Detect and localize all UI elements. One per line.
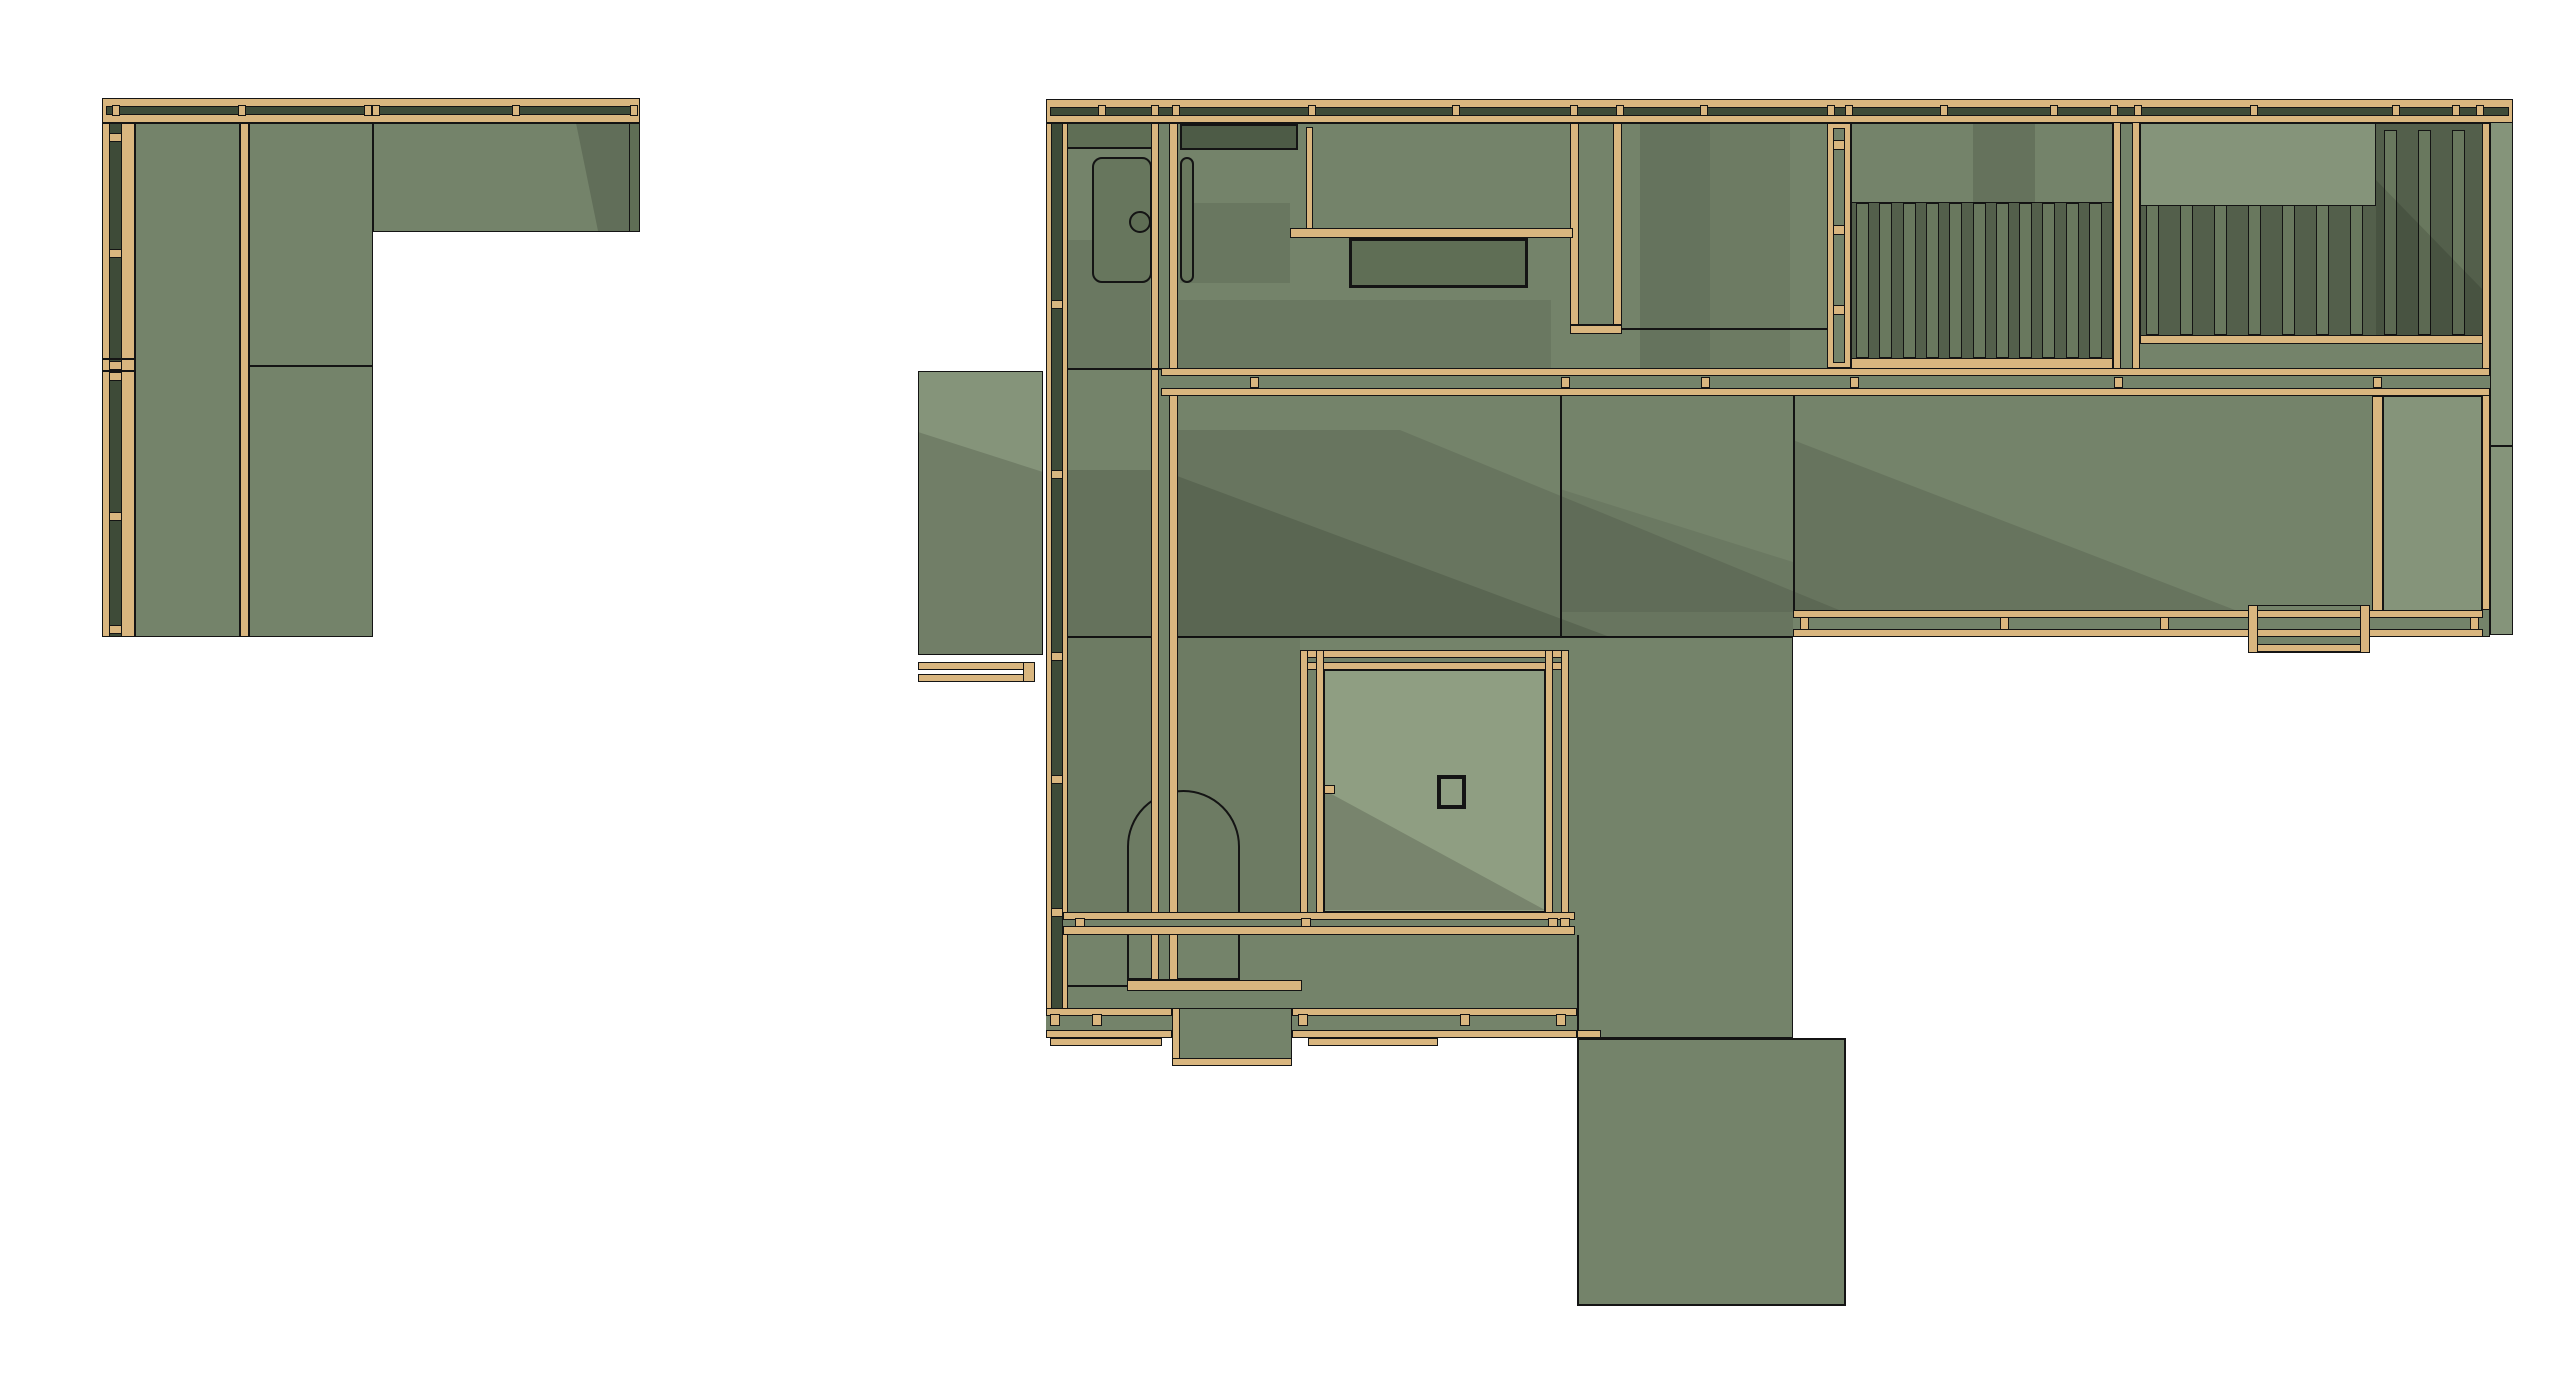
right-edge-seam bbox=[2490, 445, 2513, 447]
wall-w8-stud bbox=[1298, 1014, 1308, 1026]
wall-w3-block bbox=[1833, 140, 1845, 150]
wall-w6-stud bbox=[2160, 617, 2169, 630]
wall-w4-core bbox=[2120, 123, 2133, 385]
ledge-bottom bbox=[918, 674, 1035, 682]
bath-recess-left-line bbox=[1068, 147, 1153, 149]
left-wall-joint-a bbox=[102, 358, 135, 360]
shadow-room-tcr-b bbox=[1710, 123, 1790, 368]
wall-w7-stud bbox=[1548, 918, 1558, 927]
wall-w5-top bbox=[1161, 368, 2490, 376]
bath-recess-left bbox=[1068, 124, 1151, 148]
tab-right-bottom bbox=[2250, 644, 2368, 652]
joist-bay1-joists-slat bbox=[1926, 203, 1939, 358]
joist-bay2-cover bbox=[2140, 123, 2376, 206]
wall-w5-stud bbox=[2373, 377, 2382, 388]
right-top-band-stud bbox=[1098, 105, 1106, 116]
wall-w5-stud bbox=[1850, 377, 1859, 388]
room-r2-square bbox=[1437, 775, 1466, 809]
right-top-band-stud bbox=[1700, 105, 1708, 116]
joist-bay1-joists-slat bbox=[1879, 203, 1892, 358]
right-top-band-stud bbox=[1616, 105, 1624, 116]
left-top-band-stud bbox=[364, 105, 372, 116]
floor-seam-1577 bbox=[1577, 935, 1579, 1038]
right-top-band-core bbox=[1050, 107, 2509, 116]
wall-2372 bbox=[2372, 396, 2383, 612]
wall-w8l-core bbox=[1046, 1016, 1172, 1030]
right-top-band-stud bbox=[2452, 105, 2460, 116]
left-panel-a bbox=[135, 123, 240, 637]
wall-w2-cap bbox=[1570, 325, 1622, 334]
wall-w6-top bbox=[1793, 610, 2483, 618]
wall-w6-bottom bbox=[1793, 629, 2483, 637]
left-top-band-stud bbox=[112, 105, 120, 116]
door-leaf bbox=[1180, 157, 1194, 283]
joist-bay1-joists-slat bbox=[1973, 203, 1986, 358]
room-r1-bottom-wall bbox=[1290, 228, 1573, 238]
wall-w2-left-face bbox=[1570, 123, 1579, 325]
wall-w8r-top bbox=[1292, 1008, 1577, 1016]
right-top-band-stud bbox=[1940, 105, 1948, 116]
right-top-band-stud bbox=[1452, 105, 1460, 116]
joist-bay1-joists-slat bbox=[2019, 203, 2032, 358]
right-top-band-stud bbox=[1308, 105, 1316, 116]
bottom-column bbox=[1577, 1038, 1846, 1306]
right-top-band-stud bbox=[2250, 105, 2258, 116]
wall-w8-stud bbox=[1556, 1014, 1566, 1026]
joist-bay1-deck-shadow bbox=[1973, 124, 2035, 203]
left-panel-b-seam bbox=[249, 365, 373, 367]
right-top-band-stud bbox=[1845, 105, 1853, 116]
left-panel-b bbox=[249, 123, 373, 637]
right-left-wall-stud bbox=[1051, 300, 1063, 309]
tab-right-stud-left bbox=[2248, 605, 2258, 653]
wall-w2-right-face bbox=[1613, 123, 1622, 325]
floor-seam-1560 bbox=[1560, 396, 1562, 637]
room-r1-inset bbox=[1349, 238, 1528, 288]
shadow-room-tcr-a bbox=[1640, 123, 1710, 368]
wall-w5-stud bbox=[1701, 377, 1710, 388]
tab-bottom-mid-bottom bbox=[1172, 1058, 1292, 1066]
wall-w6-stud bbox=[2470, 617, 2479, 630]
arch-sill bbox=[1127, 980, 1302, 991]
ledge-top bbox=[918, 662, 1035, 670]
right-wall-inner-face bbox=[2482, 123, 2490, 610]
wall-w6-stud bbox=[1800, 617, 1809, 630]
hall-floor-line bbox=[1066, 985, 1127, 987]
wall-w6-core bbox=[1793, 618, 2483, 629]
room-r2-right-wall-a bbox=[1545, 650, 1553, 935]
wall-w7-top bbox=[1063, 912, 1575, 920]
right-left-wall-stud bbox=[1051, 908, 1063, 917]
left-top-band-stud bbox=[372, 105, 380, 116]
left-arm-endcap bbox=[629, 123, 640, 232]
wall-w1-core bbox=[1158, 123, 1170, 980]
room-r1-left-wall bbox=[1306, 127, 1313, 233]
left-wall-joint-b bbox=[102, 370, 135, 372]
right-edge-strip bbox=[2490, 99, 2513, 635]
wall-w5-stud bbox=[1250, 377, 1259, 388]
wall-w8l-sill bbox=[1050, 1038, 1162, 1046]
left-panel-seam-strip bbox=[240, 123, 249, 637]
wall-w3-block bbox=[1833, 305, 1845, 315]
wall-w7-stud bbox=[1075, 918, 1085, 927]
joist-bay1-joists-slat bbox=[2066, 203, 2079, 358]
wall-w5-bottom bbox=[1161, 388, 2490, 396]
room-r2-left-wall-b bbox=[1316, 650, 1324, 935]
wall-w5-stud bbox=[2114, 377, 2123, 388]
room-r2-left-wall-a bbox=[1300, 650, 1308, 935]
right-top-band-stud bbox=[2110, 105, 2118, 116]
right-left-wall-stud bbox=[1051, 652, 1063, 661]
right-left-wall-core bbox=[1051, 123, 1063, 1038]
drain bbox=[1129, 211, 1151, 233]
arch-opening bbox=[1127, 790, 1240, 980]
joist-bay1-joists-slat bbox=[1903, 203, 1916, 358]
wall-w8r-sill bbox=[1308, 1038, 1438, 1046]
room-r2-door-tab bbox=[1324, 785, 1335, 794]
wall-w5-stud bbox=[1561, 377, 1570, 388]
joist-bay1-joists-slat bbox=[2089, 203, 2102, 358]
left-top-band-stud bbox=[238, 105, 246, 116]
joist-bay1-joists-slat bbox=[1949, 203, 1962, 358]
left-wall-stud bbox=[109, 133, 122, 142]
bath-recess-right bbox=[1180, 124, 1298, 150]
right-top-band-stud bbox=[1172, 105, 1180, 116]
right-top-band-stud bbox=[1151, 105, 1159, 116]
tab-right-stud-right bbox=[2360, 605, 2370, 653]
wall-w8-stud bbox=[1460, 1014, 1470, 1026]
right-top-band-stud bbox=[2134, 105, 2142, 116]
wall-w3-core bbox=[1833, 128, 1845, 363]
wall-w3-block bbox=[1833, 225, 1845, 235]
wall-w8l-bottom bbox=[1046, 1030, 1172, 1038]
right-top-band-stud bbox=[2050, 105, 2058, 116]
right-top-band-stud bbox=[2392, 105, 2400, 116]
floor-seam-1793 bbox=[1793, 396, 1795, 612]
left-wall-stud bbox=[109, 249, 122, 258]
ledge-end-stud bbox=[1023, 662, 1035, 682]
wall-w6-stud bbox=[2000, 617, 2009, 630]
joist-bay1-joists-slat bbox=[2042, 203, 2055, 358]
left-wall-stud bbox=[109, 361, 122, 370]
joist-bay2-rim bbox=[2140, 335, 2483, 344]
left-wall-stud bbox=[109, 512, 122, 521]
joist-bay1-joists-slat bbox=[1856, 203, 1869, 358]
wall-w7-bottom bbox=[1063, 926, 1575, 935]
column-top-tan bbox=[1577, 1030, 1601, 1038]
shadow-under-longwall bbox=[1161, 300, 1551, 368]
left-wall-stud bbox=[109, 625, 122, 634]
wall-w8-stud bbox=[1092, 1014, 1102, 1026]
room-r2-top-wall-a bbox=[1300, 650, 1569, 658]
wall-w7-stud bbox=[1560, 918, 1570, 927]
right-top-band-stud bbox=[2476, 105, 2484, 116]
room-r2-top-wall-b bbox=[1300, 662, 1569, 670]
room-tcr-seam bbox=[1622, 328, 1827, 330]
panel-light-right bbox=[2383, 396, 2482, 612]
right-top-band-stud bbox=[1570, 105, 1578, 116]
floorplan-canvas bbox=[0, 0, 2558, 1396]
left-top-band-stud bbox=[512, 105, 520, 116]
wall-w8l-top bbox=[1046, 1008, 1172, 1016]
wall-w8-stud bbox=[1050, 1014, 1060, 1026]
wall-w8r-bottom bbox=[1292, 1030, 1577, 1038]
wall-w7-stud bbox=[1301, 918, 1311, 927]
left-top-band-stud bbox=[630, 105, 638, 116]
right-left-wall-stud bbox=[1051, 775, 1063, 784]
shadow-hall-band bbox=[1180, 203, 1290, 283]
right-left-wall-stud bbox=[1051, 470, 1063, 479]
left-wall-stud bbox=[109, 372, 122, 381]
right-top-band-stud bbox=[1827, 105, 1835, 116]
joist-bay1-joists-slat bbox=[1996, 203, 2009, 358]
room-r2-right-wall-b bbox=[1561, 650, 1569, 935]
wall-w8r-core bbox=[1292, 1016, 1577, 1030]
